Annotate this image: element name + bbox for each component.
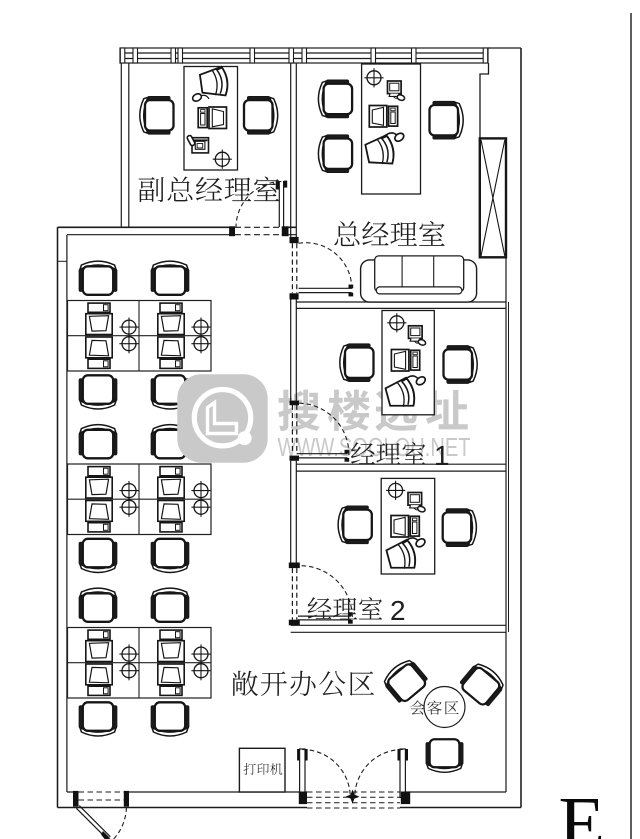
svg-text:2: 2 (390, 595, 406, 626)
svg-text:1: 1 (434, 440, 450, 471)
svg-text:E: E (559, 782, 605, 839)
